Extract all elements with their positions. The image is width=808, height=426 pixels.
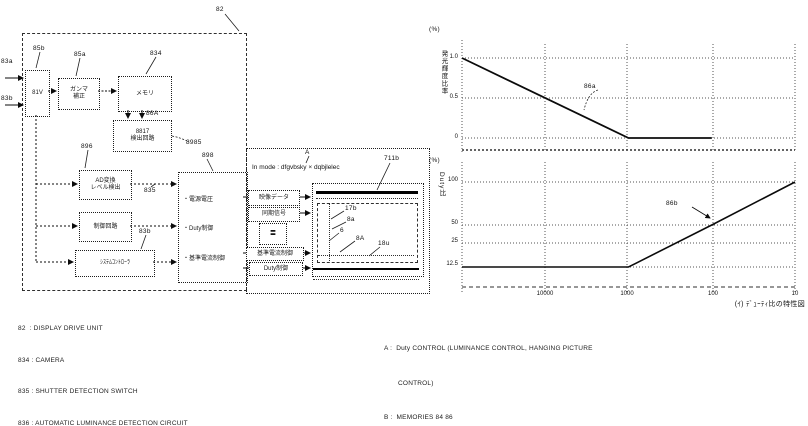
figure-ref-label: 82	[216, 6, 224, 13]
block-detector-line1: 8817	[136, 129, 149, 136]
block-system-controller-label: ｼｽﾃﾑｺﾝﾄﾛｰﾗ	[100, 260, 130, 267]
block-ad-line1: AD変換	[95, 178, 115, 185]
ref-83b-lower: 83b	[139, 228, 151, 235]
block-81v-label: 81V	[32, 90, 43, 97]
block-control-label: 制御回路	[93, 224, 117, 231]
block-detector-line2: 検出回路	[130, 136, 154, 143]
signal-box-duty: Duty制御	[249, 262, 303, 276]
legend-left-line: 836 : AUTOMATIC LUMINANCE DETECTION CIRC…	[18, 419, 188, 426]
ref-834: 834	[150, 50, 162, 57]
signal-box-duty-label: Duty制御	[264, 266, 288, 273]
panel-bottom-dotted-row	[318, 255, 414, 256]
block-control-circuit: 制御回路	[79, 212, 132, 242]
ref-85b: 85b	[33, 45, 45, 52]
ref-8985: 8985	[186, 139, 202, 146]
ref-898: 898	[202, 152, 214, 159]
signal-box-sync: 同期信号	[248, 207, 300, 222]
chart1-ylabel: 発光輝度比率	[438, 50, 448, 125]
block-ad-convert: AD変換 レベル検出	[79, 170, 132, 200]
panel-under-dotted-row	[313, 279, 419, 280]
signal-box-refcurrent: 基準電流制御	[246, 247, 304, 261]
signal-box-driver: 〓	[259, 223, 287, 245]
panel-ref-6: 6	[340, 227, 344, 234]
chart2-caption: (ｲ) ﾃﾞｭｰﾃｨ比の特性図	[640, 301, 805, 308]
legend-right-line: A : Duty CONTROL (LUMINANCE CONTROL, HAN…	[384, 343, 593, 355]
block-memory-label: メモリ	[136, 91, 154, 98]
output-item-voltage: ・電源電圧	[183, 194, 247, 203]
output-item-duty: ・Duty制御	[183, 223, 247, 232]
chart2-xtick-4: 10	[775, 291, 808, 297]
chart2-ytick-3: 25	[434, 238, 458, 244]
output-item-refcurrent: ・基準電流制御	[183, 253, 247, 262]
panel-dotted-bar	[316, 198, 418, 199]
ref-711b: 711b	[384, 155, 399, 162]
chart2-ytick-4: 12.5	[430, 261, 458, 267]
block-gamma: ガンマ 補正	[58, 78, 100, 110]
panel-ref-17b: 17b	[345, 205, 357, 212]
patent-figure: 82 83a 83b 81V 85b ガンマ 補正 85a メモリ 834 86…	[0, 0, 808, 426]
signal-box-refcurrent-label: 基準電流制御	[257, 251, 293, 258]
legend-left: 82 : DISPLAY DRIVE UNIT 834 : CAMERA 835…	[18, 303, 188, 426]
chart1-yunit: (%)	[429, 26, 440, 33]
block-system-controller: ｼｽﾃﾑｺﾝﾄﾛｰﾗ	[75, 250, 155, 277]
block-ad-line2: レベル検出	[90, 185, 120, 192]
panel-ref-8A: 8A	[356, 235, 365, 242]
chart2-xtick-1: 10000	[525, 291, 565, 297]
chart1-ytick-2: 0.5	[436, 94, 458, 100]
signal-box-driver-label: 〓	[270, 231, 276, 238]
block-81v: 81V	[25, 70, 50, 117]
chart2-curve-label: 86b	[666, 200, 678, 207]
chart1-curve-label: 86a	[584, 83, 596, 90]
panel-inner-strip	[329, 203, 330, 261]
chart2-ytick-2: 50	[434, 220, 458, 226]
legend-right-line: B : MEMORIES 84 86	[384, 412, 593, 424]
panel-ref-8a: 8a	[347, 216, 355, 223]
panel-inner-frame	[317, 203, 418, 263]
input-label-83a: 83a	[1, 58, 13, 65]
panel-area-header: In mode : dfgvbsky × dqbjlelec	[252, 164, 404, 171]
signal-box-video-data-label: 映像データ	[259, 195, 289, 202]
legend-right: A : Duty CONTROL (LUMINANCE CONTROL, HAN…	[384, 320, 593, 426]
ref-a: A	[305, 149, 310, 156]
chart2-yunit: (%)	[429, 157, 440, 164]
block-detector: 8817 検出回路	[113, 120, 172, 152]
legend-right-line: CONTROL)	[384, 378, 593, 390]
legend-left-line: 835 : SHUTTER DETECTION SWITCH	[18, 387, 188, 398]
block-gamma-line2: 補正	[73, 94, 85, 101]
legend-left-line: 834 : CAMERA	[18, 356, 188, 367]
panel-ref-18u: 18u	[378, 240, 390, 247]
chart2-curve	[462, 182, 795, 267]
ref-86a-mid: 86A	[146, 110, 158, 117]
panel-top-bar	[316, 191, 418, 194]
chart2-xtick-3: 100	[693, 291, 733, 297]
signal-box-video-data: 映像データ	[248, 190, 300, 206]
chart2-ytick-1: 100	[434, 177, 458, 183]
input-label-83b: 83b	[1, 95, 13, 102]
chart1-ytick-1: 1.0	[436, 54, 458, 60]
ref-835: 835	[144, 187, 156, 194]
block-gamma-line1: ガンマ	[70, 87, 88, 94]
block-memory: メモリ	[118, 76, 172, 112]
ref-896: 896	[81, 143, 93, 150]
block-output-list: ・電源電圧 ・Duty制御 ・基準電流制御	[178, 172, 248, 283]
panel-bottom-bar	[313, 268, 419, 270]
chart1-ytick-3: 0	[436, 134, 458, 140]
ref-85a: 85a	[74, 51, 86, 58]
chart2-xtick-2: 1000	[607, 291, 647, 297]
chart1-curve	[462, 58, 712, 138]
signal-box-sync-label: 同期信号	[262, 211, 286, 218]
legend-left-line: 82 : DISPLAY DRIVE UNIT	[18, 324, 188, 335]
